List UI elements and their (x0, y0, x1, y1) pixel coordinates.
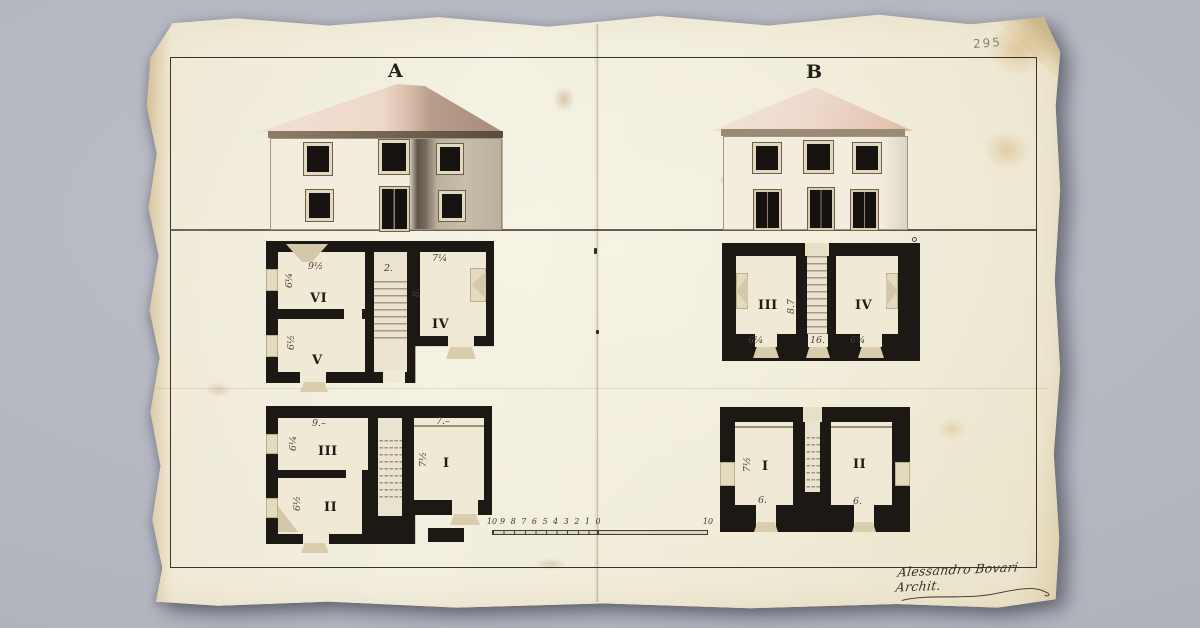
elevation-b-eave-band (721, 129, 905, 136)
dimension: 6¼ (288, 436, 299, 451)
corner-ring-mark (912, 237, 917, 242)
dimension: 6. (758, 495, 767, 506)
threshold (754, 522, 778, 532)
threshold (858, 347, 884, 358)
window-niche (266, 269, 278, 291)
door-opening (303, 532, 329, 544)
window (379, 140, 409, 174)
scale-bar-plain-segment (598, 530, 708, 535)
scale-bar-subdivided-segment (492, 530, 598, 535)
window (306, 190, 333, 221)
dimension: 6¼ (748, 335, 763, 346)
entrance-door (380, 187, 409, 231)
room-label: III (318, 444, 338, 459)
threshold (301, 543, 329, 553)
room-label: IV (855, 298, 872, 313)
dimension: 16. (810, 335, 825, 346)
window-niche (266, 498, 278, 518)
room-label: II (853, 457, 866, 472)
door-opening (300, 370, 326, 383)
entry-opening (805, 243, 829, 256)
threshold (450, 514, 480, 525)
dimension: 2. (384, 263, 393, 274)
dimension: 6½ (286, 335, 297, 350)
entry-opening (803, 407, 822, 422)
elevation-a-facade (270, 138, 502, 230)
dimension: 9.– (312, 418, 326, 429)
room-label: V (312, 353, 323, 368)
dimension: 7½ (418, 452, 429, 467)
scale-tick-label: 3 (564, 517, 569, 526)
photograph-of-architectural-sheet: 295 A B (0, 0, 1200, 628)
elevation-a-eave-band (268, 131, 503, 138)
room-label: VI (310, 291, 327, 306)
dimension: 6½ (292, 496, 303, 511)
architect-signature: Alessandro Bovari Archit. (896, 557, 1063, 604)
threshold (300, 382, 328, 392)
elevation-a-label: A (388, 60, 404, 82)
dimension: 6¼ (284, 273, 295, 288)
dimension: 8.7 (786, 299, 797, 314)
window (439, 191, 465, 221)
paper-deckle-edge (145, 10, 171, 610)
dimension: 7½ (742, 457, 753, 472)
elevation-b-label: B (806, 61, 823, 83)
window-niche (895, 462, 910, 486)
scale-end-label: 10 (703, 517, 713, 526)
threshold (446, 347, 476, 359)
room-top-line (735, 426, 793, 428)
plan-b-ground-floor: I II 6. 6. 7½ (720, 407, 910, 540)
window (753, 143, 781, 173)
room-label: IV (432, 317, 449, 332)
plan-b-upper-floor: III IV 6¼ 16. 6¼ 8.7 (722, 243, 920, 361)
paper-surface: 295 A B (145, 10, 1062, 610)
paper-sheet: 295 A B (145, 10, 1062, 610)
scale-tick-label: 9 (500, 517, 505, 526)
dimension: 8. (411, 288, 422, 297)
scale-bar: 10 9 8 7 6 5 4 3 2 1 0 10 (492, 517, 714, 543)
staircase (374, 281, 407, 343)
stair-landing (805, 422, 820, 437)
threshold (852, 522, 876, 532)
folio-number: 295 (973, 35, 1003, 51)
scale-tick-label: 2 (574, 517, 579, 526)
staircase (805, 437, 820, 492)
dimension: 7.– (436, 416, 450, 427)
french-door (808, 188, 834, 230)
scale-tick-label: 7 (521, 517, 526, 526)
scale-tick-label: 8 (511, 517, 516, 526)
scale-tick-label: 1 (585, 517, 590, 526)
window-niche (720, 462, 735, 486)
scale-tick-label: 0 (595, 517, 600, 526)
door-opening (383, 370, 405, 383)
threshold (753, 347, 779, 358)
plan-a-upper-floor: VI V IV 9½ 2. 7¼ 6¼ 6½ 8. (266, 241, 494, 383)
window-niche (266, 335, 278, 357)
window (304, 143, 332, 175)
french-door (851, 190, 878, 230)
room-top-line (831, 426, 892, 428)
door-opening (452, 500, 478, 515)
dimension: 7¼ (432, 253, 447, 264)
threshold (806, 347, 830, 358)
staircase (378, 440, 402, 498)
scale-tick-label: 4 (553, 517, 558, 526)
window (853, 143, 881, 173)
window (437, 144, 463, 174)
dimension: 6. (853, 496, 862, 507)
room-label: II (324, 500, 337, 515)
room-label: I (762, 459, 769, 474)
elevation-b-facade (723, 136, 908, 230)
elevation-b-shading (881, 137, 907, 229)
dimension: 6¼ (850, 335, 865, 346)
dimension: 9½ (308, 261, 323, 272)
window-niche (266, 434, 278, 454)
wall-stub (428, 528, 464, 542)
door-opening (346, 470, 362, 478)
room-label: III (758, 298, 778, 313)
room-label: I (443, 456, 450, 471)
french-door (754, 190, 781, 230)
staircase (807, 256, 827, 334)
window (804, 141, 833, 173)
scale-tick-label: 6 (532, 517, 537, 526)
door-opening (448, 336, 474, 347)
scale-tick-label: 10 (487, 517, 497, 526)
door-opening (344, 307, 362, 321)
scale-tick-label: 5 (542, 517, 547, 526)
plan-a-ground-floor: III II I 9.– 7.– 6¼ 6½ 7½ (266, 406, 492, 544)
